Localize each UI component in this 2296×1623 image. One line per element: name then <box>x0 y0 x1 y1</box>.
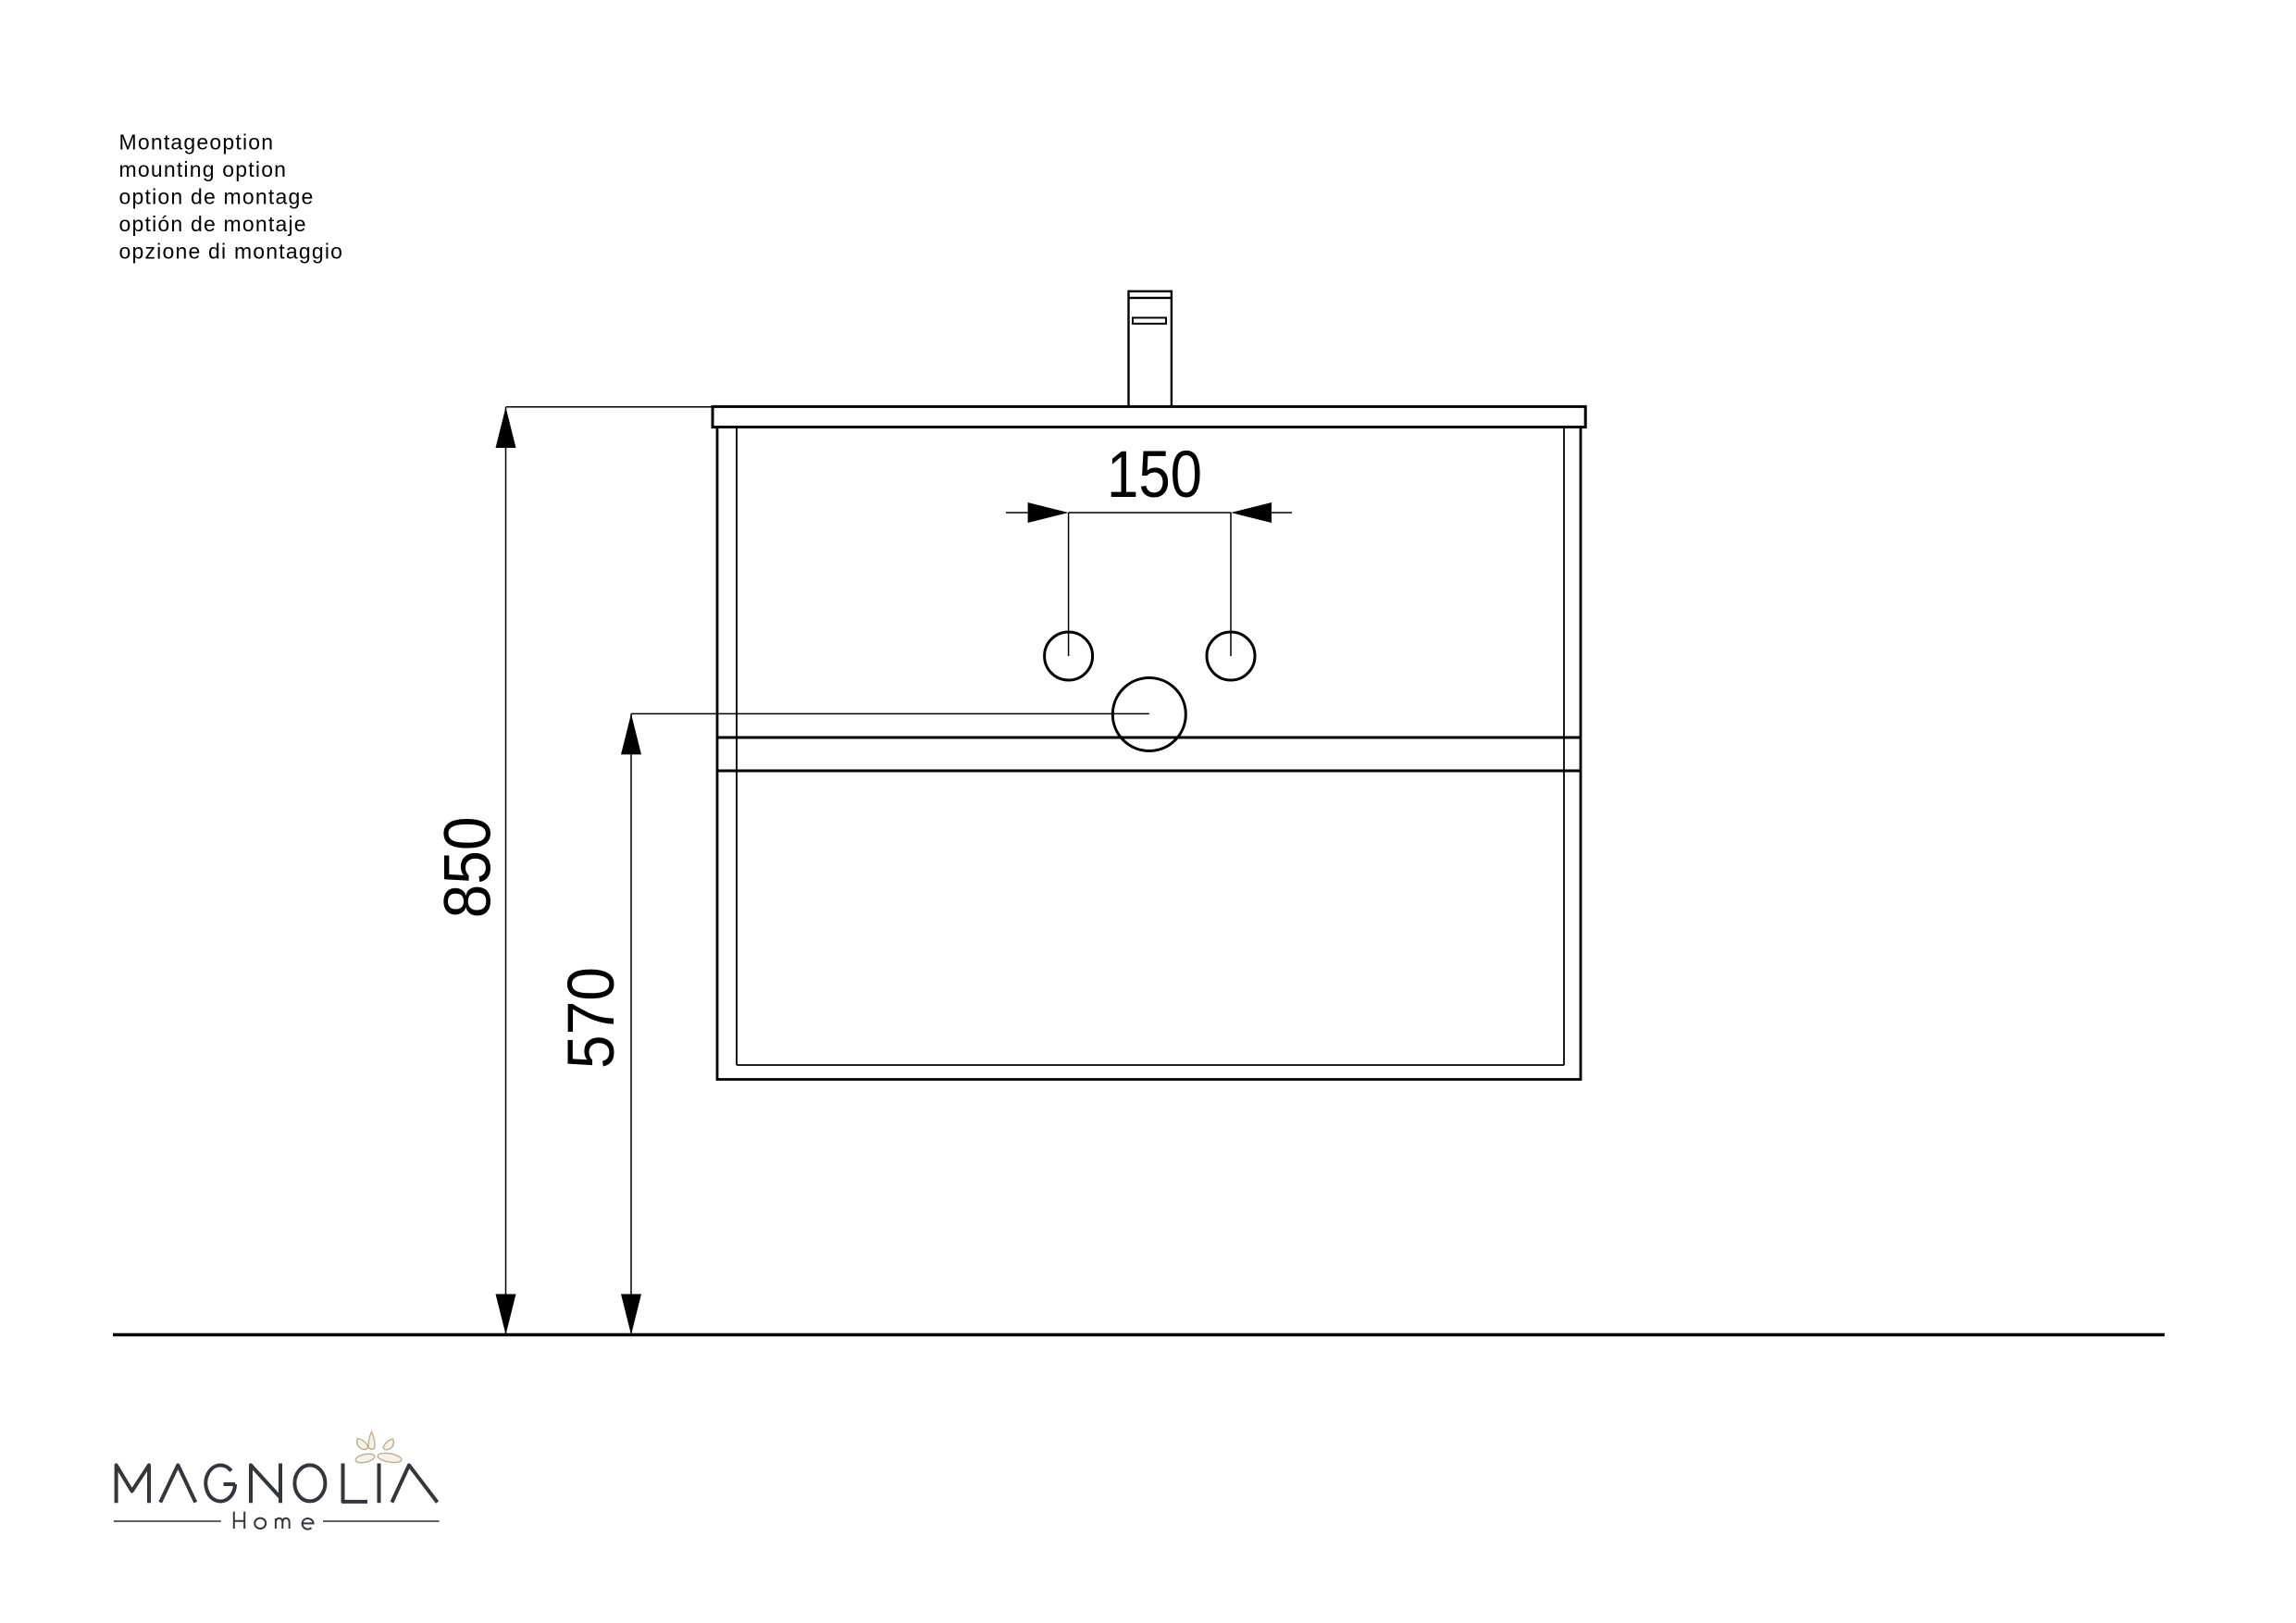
svg-text:mounting option: mounting option <box>119 157 288 181</box>
svg-text:150: 150 <box>1107 439 1202 512</box>
svg-text:optión de montaje: optión de montaje <box>119 212 307 236</box>
svg-text:option de montage: option de montage <box>119 184 315 208</box>
svg-text:Montageoption: Montageoption <box>119 130 275 154</box>
svg-text:570: 570 <box>555 967 628 1069</box>
svg-text:opzione di montaggio: opzione di montaggio <box>119 240 344 264</box>
svg-text:850: 850 <box>431 816 504 918</box>
